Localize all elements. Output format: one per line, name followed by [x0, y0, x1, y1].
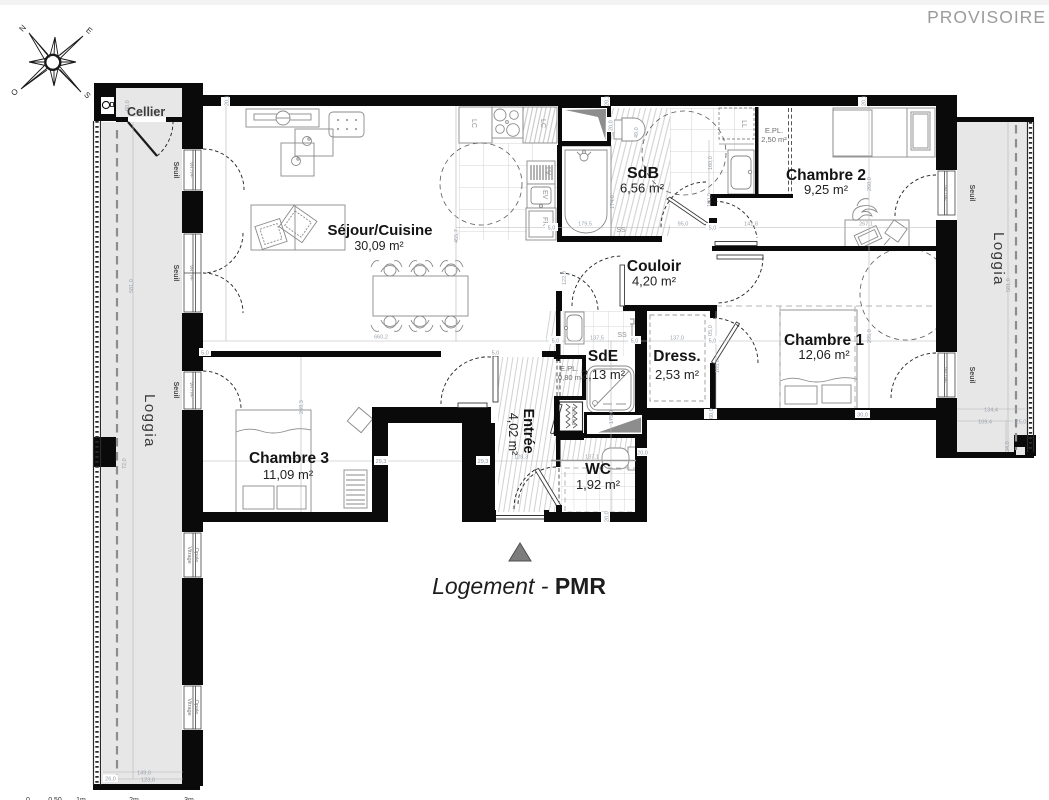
- svg-text:137,1: 137,1: [585, 455, 599, 461]
- svg-text:26,0: 26,0: [105, 777, 116, 783]
- svg-text:PROVISOIRE: PROVISOIRE: [927, 7, 1046, 27]
- svg-text:CEL 15,3: CEL 15,3: [571, 407, 576, 426]
- svg-text:25,0: 25,0: [1016, 420, 1027, 426]
- svg-text:E.PL.: E.PL.: [765, 126, 783, 135]
- svg-text:100,0: 100,0: [707, 193, 713, 207]
- svg-text:Vitrage: Vitrage: [186, 546, 192, 563]
- svg-text:455,7: 455,7: [454, 229, 460, 243]
- svg-text:LV: LV: [544, 167, 551, 175]
- svg-text:SS: SS: [617, 332, 627, 339]
- svg-text:LC: LC: [539, 119, 546, 128]
- svg-text:Seuil: Seuil: [172, 265, 179, 282]
- svg-text:VR / PF: VR / PF: [943, 185, 948, 201]
- svg-text:2,13 m²: 2,13 m²: [581, 367, 626, 382]
- svg-text:SdB: SdB: [627, 165, 659, 182]
- svg-text:Opale: Opale: [193, 700, 199, 715]
- svg-text:34,0: 34,0: [1005, 441, 1011, 452]
- svg-text:4,02 m²: 4,02 m²: [506, 413, 520, 455]
- svg-text:Opale: Opale: [193, 548, 199, 563]
- svg-text:12,06 m²: 12,06 m²: [798, 347, 850, 362]
- svg-text:VR / PF: VR / PF: [943, 367, 948, 383]
- svg-text:WC: WC: [585, 461, 611, 478]
- svg-text:Cellier: Cellier: [127, 105, 165, 119]
- svg-text:2,50 m²: 2,50 m²: [761, 135, 787, 144]
- svg-text:11,09 m²: 11,09 m²: [263, 467, 314, 482]
- svg-text:Dress.: Dress.: [653, 348, 700, 365]
- svg-text:9,25 m²: 9,25 m²: [804, 182, 849, 197]
- svg-text:VR / PF: VR / PF: [189, 265, 194, 281]
- svg-text:60,0: 60,0: [709, 408, 715, 419]
- svg-text:Loggia: Loggia: [990, 232, 1007, 286]
- svg-text:20,0: 20,0: [609, 120, 615, 131]
- svg-text:581,0: 581,0: [129, 279, 135, 293]
- svg-text:Loggia: Loggia: [141, 394, 158, 448]
- svg-text:128,3: 128,3: [514, 455, 528, 461]
- svg-text:Séjour/Cuisine: Séjour/Cuisine: [327, 222, 432, 239]
- svg-text:185,0: 185,0: [715, 359, 721, 373]
- svg-text:160,0: 160,0: [708, 156, 714, 170]
- svg-text:6,56 m²: 6,56 m²: [620, 181, 665, 196]
- svg-text:5,0: 5,0: [631, 339, 639, 345]
- svg-text:95,0: 95,0: [678, 222, 689, 228]
- svg-text:137,0: 137,0: [670, 336, 684, 342]
- svg-text:29,3: 29,3: [376, 459, 387, 465]
- svg-text:Entrée: Entrée: [520, 408, 536, 453]
- svg-text:49,0: 49,0: [634, 127, 640, 138]
- svg-text:141,8: 141,8: [744, 222, 758, 228]
- svg-text:SS: SS: [616, 227, 626, 234]
- svg-text:149,0: 149,0: [137, 771, 151, 777]
- svg-text:Logement - PMR: Logement - PMR: [432, 573, 606, 599]
- svg-text:174,0: 174,0: [610, 195, 616, 209]
- svg-text:1,92 m²: 1,92 m²: [576, 477, 621, 492]
- svg-text:5,0: 5,0: [709, 339, 717, 345]
- svg-text:E.PL.: E.PL.: [560, 364, 578, 373]
- svg-text:267,1: 267,1: [859, 222, 873, 228]
- svg-text:Vitrage: Vitrage: [186, 698, 192, 715]
- svg-text:5,0: 5,0: [709, 226, 717, 232]
- svg-text:30,09 m²: 30,09 m²: [354, 239, 403, 253]
- svg-text:122,0: 122,0: [562, 271, 568, 285]
- svg-text:5,0: 5,0: [492, 351, 500, 357]
- svg-text:30,0: 30,0: [857, 413, 868, 419]
- svg-text:VR / PF: VR / PF: [189, 162, 194, 178]
- svg-text:175,0: 175,0: [609, 410, 615, 424]
- svg-text:Seuil: Seuil: [172, 162, 179, 179]
- svg-text:109,4: 109,4: [978, 420, 992, 426]
- svg-text:295,0: 295,0: [867, 329, 873, 343]
- svg-text:4,20 m²: 4,20 m²: [632, 274, 677, 289]
- svg-text:20,0: 20,0: [637, 451, 648, 457]
- svg-text:5,0: 5,0: [548, 226, 556, 232]
- svg-text:29,3: 29,3: [478, 459, 489, 465]
- svg-text:SdE: SdE: [588, 348, 618, 365]
- svg-text:Seuil: Seuil: [968, 367, 975, 384]
- svg-text:5,0: 5,0: [552, 339, 560, 345]
- svg-text:VR / PF: VR / PF: [189, 382, 194, 398]
- svg-text:179,5: 179,5: [578, 222, 592, 228]
- svg-text:134,4: 134,4: [984, 408, 998, 414]
- svg-text:Seuil: Seuil: [968, 185, 975, 202]
- svg-text:Seuil: Seuil: [172, 382, 179, 399]
- svg-text:Couloir: Couloir: [627, 258, 681, 275]
- svg-text:2,53 m²: 2,53 m²: [655, 367, 700, 382]
- svg-text:289,3: 289,3: [299, 400, 305, 414]
- svg-text:20,1: 20,1: [605, 95, 611, 106]
- svg-text:5,0: 5,0: [201, 351, 209, 357]
- svg-text:72,0: 72,0: [122, 458, 128, 469]
- svg-text:LL: LL: [740, 120, 747, 128]
- svg-text:Chambre 3: Chambre 3: [249, 450, 329, 467]
- svg-text:0,80 m: 0,80 m: [558, 373, 581, 382]
- svg-text:20,1: 20,1: [862, 95, 868, 106]
- svg-text:137,5: 137,5: [590, 336, 604, 342]
- svg-text:EV: EV: [541, 190, 548, 200]
- svg-text:20,0: 20,0: [605, 511, 611, 522]
- svg-text:123,0: 123,0: [141, 778, 155, 784]
- svg-text:20,1: 20,1: [225, 95, 231, 106]
- svg-text:660,2: 660,2: [374, 335, 388, 341]
- svg-text:260,0: 260,0: [867, 177, 873, 191]
- svg-text:LC: LC: [470, 119, 477, 128]
